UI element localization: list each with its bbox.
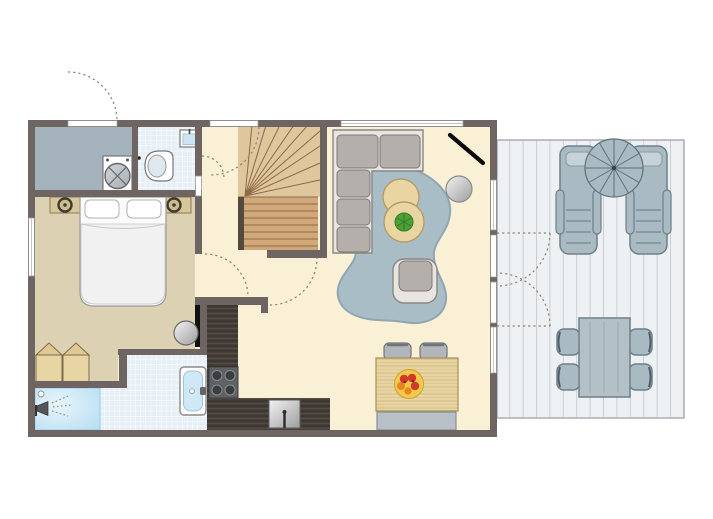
- walls: [28, 120, 497, 437]
- dining-bench: [377, 412, 456, 430]
- plant-icon: [395, 213, 413, 231]
- wall-bedroom-kitchen: [200, 305, 207, 349]
- dining-chair: [420, 343, 447, 360]
- nightstand-right: [157, 197, 191, 213]
- lounger-pillow: [636, 152, 662, 166]
- lounger-armrest: [556, 190, 564, 234]
- garden-chair: [629, 329, 652, 355]
- living-room-door-swing: [270, 258, 317, 305]
- toilet-door-swing: [202, 156, 224, 178]
- garden-dining-set: [557, 318, 652, 397]
- corner-sofa: [333, 130, 423, 253]
- fruit-bowl: [395, 370, 424, 399]
- kitchen-counter: [207, 398, 330, 430]
- wall-bottom: [28, 430, 497, 437]
- bathroom: [33, 367, 206, 416]
- bedroom-door-swing: [205, 254, 248, 297]
- wall-hall-toilet: [195, 127, 202, 176]
- tv: [450, 135, 483, 163]
- side-table: [383, 179, 419, 215]
- wall-right: [490, 120, 497, 437]
- pillow: [85, 200, 119, 218]
- wardrobe: [36, 343, 89, 382]
- kitchen-sink: [269, 400, 300, 428]
- nightstand-left: [50, 197, 84, 213]
- wall-stairs-bottom: [267, 250, 327, 258]
- front-door-leaf: [68, 121, 117, 127]
- terrace-door-leaf: [491, 235, 497, 277]
- bathroom-floor: [100, 355, 207, 430]
- utility-room: [103, 156, 132, 191]
- back-door-swing: [211, 127, 259, 175]
- floors: [35, 127, 490, 430]
- bedroom-floor: [35, 197, 195, 381]
- sun-lounger-right: [626, 146, 671, 254]
- deck-floor: [497, 140, 684, 418]
- wall-openings: [29, 121, 497, 373]
- rug: [338, 162, 450, 323]
- toilet-door-leaf: [196, 176, 202, 196]
- parasol: [585, 139, 643, 197]
- garden-table: [579, 318, 630, 397]
- terrace-door-leaf: [491, 282, 497, 323]
- wall-left: [28, 120, 35, 437]
- wall-bedroom-bathroom: [118, 349, 207, 355]
- toilet: [137, 151, 173, 181]
- toilet-room: [137, 129, 199, 181]
- lamp-icon: [59, 199, 72, 212]
- sun-lounger-left: [556, 146, 601, 254]
- window-living-right: [491, 180, 497, 230]
- wall-bedroom-top: [35, 190, 202, 197]
- wall-utility-toilet: [132, 127, 138, 190]
- window-living-top: [341, 121, 463, 127]
- drain-icon: [38, 391, 44, 397]
- wall-top: [28, 120, 497, 127]
- shower-head: [33, 391, 71, 416]
- bedroom: [36, 197, 200, 382]
- lounger-pillow: [566, 152, 592, 166]
- terrace-deck: [497, 139, 684, 418]
- bath-tap: [200, 387, 206, 395]
- stove: [209, 367, 238, 398]
- dining-set: [376, 343, 458, 430]
- window-dining-right: [491, 327, 497, 373]
- wall-hall-kitchen: [195, 297, 268, 305]
- mirror-strip: [195, 303, 200, 347]
- garden-chair: [629, 364, 652, 390]
- wall-nook-shower: [30, 381, 122, 388]
- utility-room-floor: [35, 127, 132, 190]
- bathtub: [180, 367, 206, 415]
- lounger-armrest: [626, 190, 634, 234]
- stair-stringer: [238, 197, 244, 250]
- living-kitchen-hall-floor: [35, 127, 490, 430]
- floor-plan: [0, 0, 713, 519]
- kitchen: [207, 305, 330, 430]
- washbasin: [174, 321, 198, 345]
- wall-stairs-right: [320, 120, 327, 258]
- wall-hall-bedroom: [195, 196, 202, 254]
- kitchen-counter: [207, 305, 238, 400]
- dining-table: [376, 358, 458, 411]
- washing-machine: [103, 156, 132, 191]
- wall-nook: [119, 349, 127, 388]
- lamp-icon: [168, 199, 181, 212]
- toilet-room-floor: [138, 127, 195, 190]
- armchair: [393, 259, 437, 303]
- door-swings: [68, 72, 317, 305]
- pillow: [127, 200, 161, 218]
- lounger-armrest: [663, 190, 671, 234]
- living-dining-room: [333, 130, 483, 430]
- duvet: [81, 224, 165, 304]
- dining-chair: [384, 343, 411, 360]
- wall-stub: [261, 305, 268, 313]
- garden-chair: [557, 329, 580, 355]
- front-door-swing: [68, 72, 117, 121]
- floor-plan-canvas: [0, 0, 713, 519]
- staircase: [238, 125, 320, 250]
- double-bed: [80, 197, 166, 306]
- back-door-leaf: [210, 121, 258, 127]
- side-table-plant: [384, 202, 424, 242]
- garden-chair: [557, 364, 580, 390]
- shower-floor: [35, 388, 100, 430]
- round-mirror-table: [446, 176, 472, 202]
- window-bedroom: [29, 218, 35, 276]
- lounger-armrest: [593, 190, 601, 234]
- hand-basin: [180, 129, 199, 147]
- terrace-door-swings: [497, 233, 550, 326]
